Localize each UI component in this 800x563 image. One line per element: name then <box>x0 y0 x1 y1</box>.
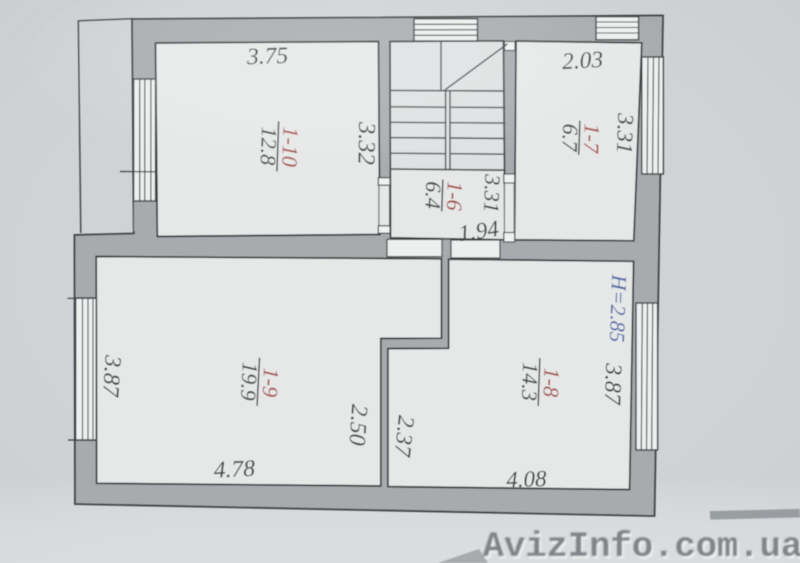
svg-text:2.50: 2.50 <box>343 404 372 447</box>
svg-text:3.87: 3.87 <box>599 362 626 406</box>
svg-text:H=2.85: H=2.85 <box>605 273 631 343</box>
svg-text:3.31: 3.31 <box>479 173 505 213</box>
svg-text:4.08: 4.08 <box>506 466 548 492</box>
svg-text:2.37: 2.37 <box>389 414 419 459</box>
svg-text:14.3: 14.3 <box>517 362 543 401</box>
svg-text:4.78: 4.78 <box>213 456 255 484</box>
svg-text:AvizInfo.com.ua: AvizInfo.com.ua <box>483 526 800 563</box>
svg-text:3.87: 3.87 <box>97 354 126 399</box>
svg-text:6.4: 6.4 <box>420 181 446 209</box>
svg-text:19.9: 19.9 <box>236 361 263 401</box>
